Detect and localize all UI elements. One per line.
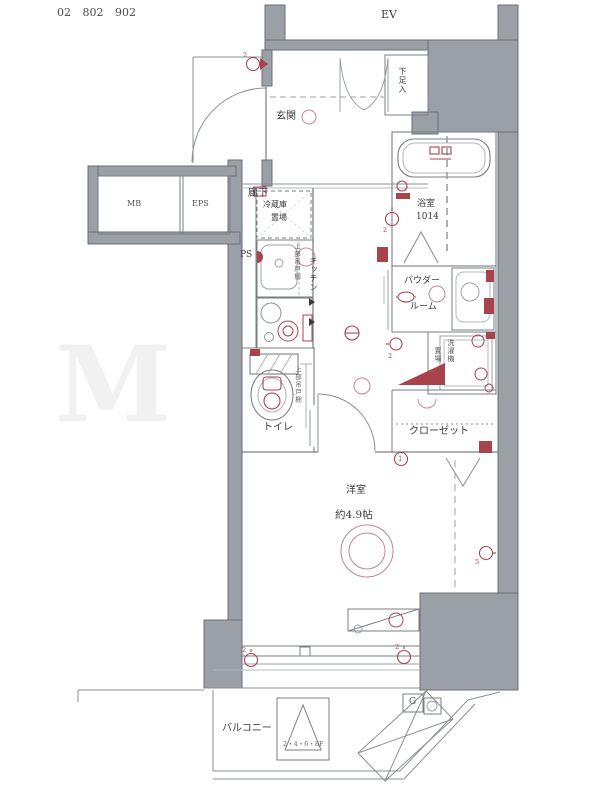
room-label-balcony: バルコニー <box>222 724 272 734</box>
label-hatch-floors: 2・4・6・8F <box>283 741 324 748</box>
wall-bottom-right-block <box>420 593 518 690</box>
wall-entrance-left-bottom <box>262 160 272 186</box>
wall-bottom-left-block <box>204 620 242 688</box>
switch-box-icon <box>377 247 388 262</box>
hall-light-icon-2 <box>354 378 370 394</box>
wall-entrance-top <box>265 40 428 50</box>
closet-area <box>392 390 496 486</box>
balcony-area <box>78 688 500 781</box>
floor-plan: 02 802 902 EV 玄関 下足入 廊下 MB EPS 冷蔵庫 置場 PS… <box>0 0 600 800</box>
powder-light-icon <box>429 286 445 302</box>
room-label-toilet: トイレ <box>263 423 293 433</box>
label-gas-meter: G <box>409 698 416 707</box>
hanger-pipe-icon <box>418 399 436 408</box>
room-label-bath: 浴室 <box>417 200 435 209</box>
small-basin-icon <box>396 292 416 302</box>
evacuation-hatch <box>277 698 329 760</box>
bath-faucet-icon <box>430 147 451 159</box>
red-triangle-mark <box>398 363 445 385</box>
stove <box>257 298 313 348</box>
room-label-kitchen: キッチン <box>309 256 317 292</box>
label-fridge-1: 冷蔵庫 <box>263 201 287 209</box>
label-fridge-2: 置場 <box>271 214 287 222</box>
room-door-arc <box>318 394 375 451</box>
toilet-room <box>242 348 318 452</box>
unit-numbers: 02 802 902 <box>57 7 136 18</box>
bathtub <box>398 139 490 177</box>
room-label-shoe-cabinet: 下足入 <box>398 67 406 94</box>
outlet-count: 5 <box>475 559 479 566</box>
circled-number-label: 1 <box>398 456 402 463</box>
shoe-door-arc-left <box>340 58 364 110</box>
label-laundry-2: 置場 <box>434 347 441 363</box>
outlet-count: 2 <box>383 227 387 234</box>
kitchen-area <box>254 187 315 348</box>
entrance-door-arc <box>192 88 266 162</box>
outlet-icon-powder <box>386 338 402 350</box>
wall-ev-right-pillar <box>498 5 518 41</box>
wall-annex-top <box>88 166 236 176</box>
wall-entrance-left-top <box>262 50 272 86</box>
shoe-door-arc-right <box>364 58 388 110</box>
outlet-icon-room-right <box>480 547 497 560</box>
ac-unit-space <box>358 691 453 781</box>
switch-box-icon-2 <box>479 441 492 453</box>
closet-folding-door <box>446 458 480 486</box>
outlet-count: 2 <box>242 647 246 654</box>
outlet-count: 2 <box>388 353 392 360</box>
outlet-icon-room-center <box>398 646 411 664</box>
ceiling-symbol-hall <box>345 326 359 340</box>
main-room-area <box>213 460 455 670</box>
label-laundry-1: 洗濯機 <box>447 339 454 363</box>
room-label-ps: PS <box>240 251 252 260</box>
room-label-closet: クローゼット <box>409 427 469 437</box>
counter-symbol <box>389 613 403 627</box>
counter <box>348 609 419 631</box>
room-label-mb: MB <box>127 200 141 208</box>
electrical-symbols <box>245 58 497 667</box>
watermark: M <box>55 322 171 446</box>
label-upper-cabinet-toilet: 上部吊戸棚 <box>294 366 301 404</box>
room-label-powder-2: ルーム <box>410 303 437 312</box>
bathroom <box>392 132 496 266</box>
room-label-entrance: 玄関 <box>276 112 296 122</box>
grill-icon <box>303 315 312 341</box>
room-label-main-room: 洋室 <box>346 486 366 496</box>
bath-folding-door <box>404 232 438 263</box>
outlet-count: 2 <box>395 644 399 651</box>
entrance-light-icon <box>302 110 316 124</box>
powder-room <box>384 266 496 332</box>
toilet-fixture <box>250 349 298 420</box>
room-label-elevator: EV <box>381 9 397 20</box>
outlet-count: 2 <box>243 52 247 59</box>
room-label-powder-1: パウダー <box>404 277 440 286</box>
meter-box-area <box>98 176 230 234</box>
label-main-room-size: 約4.9帖 <box>335 510 373 521</box>
wall-top-right-block <box>428 40 518 132</box>
label-upper-cabinet-kitchen: 上部吊戸棚 <box>293 243 300 281</box>
room-label-eps: EPS <box>192 200 209 208</box>
room-label-hallway: 廊下 <box>248 189 268 199</box>
label-bath-size: 1014 <box>416 213 439 222</box>
shoe-cabinet <box>340 55 428 115</box>
sink-faucet-icon <box>257 251 263 263</box>
